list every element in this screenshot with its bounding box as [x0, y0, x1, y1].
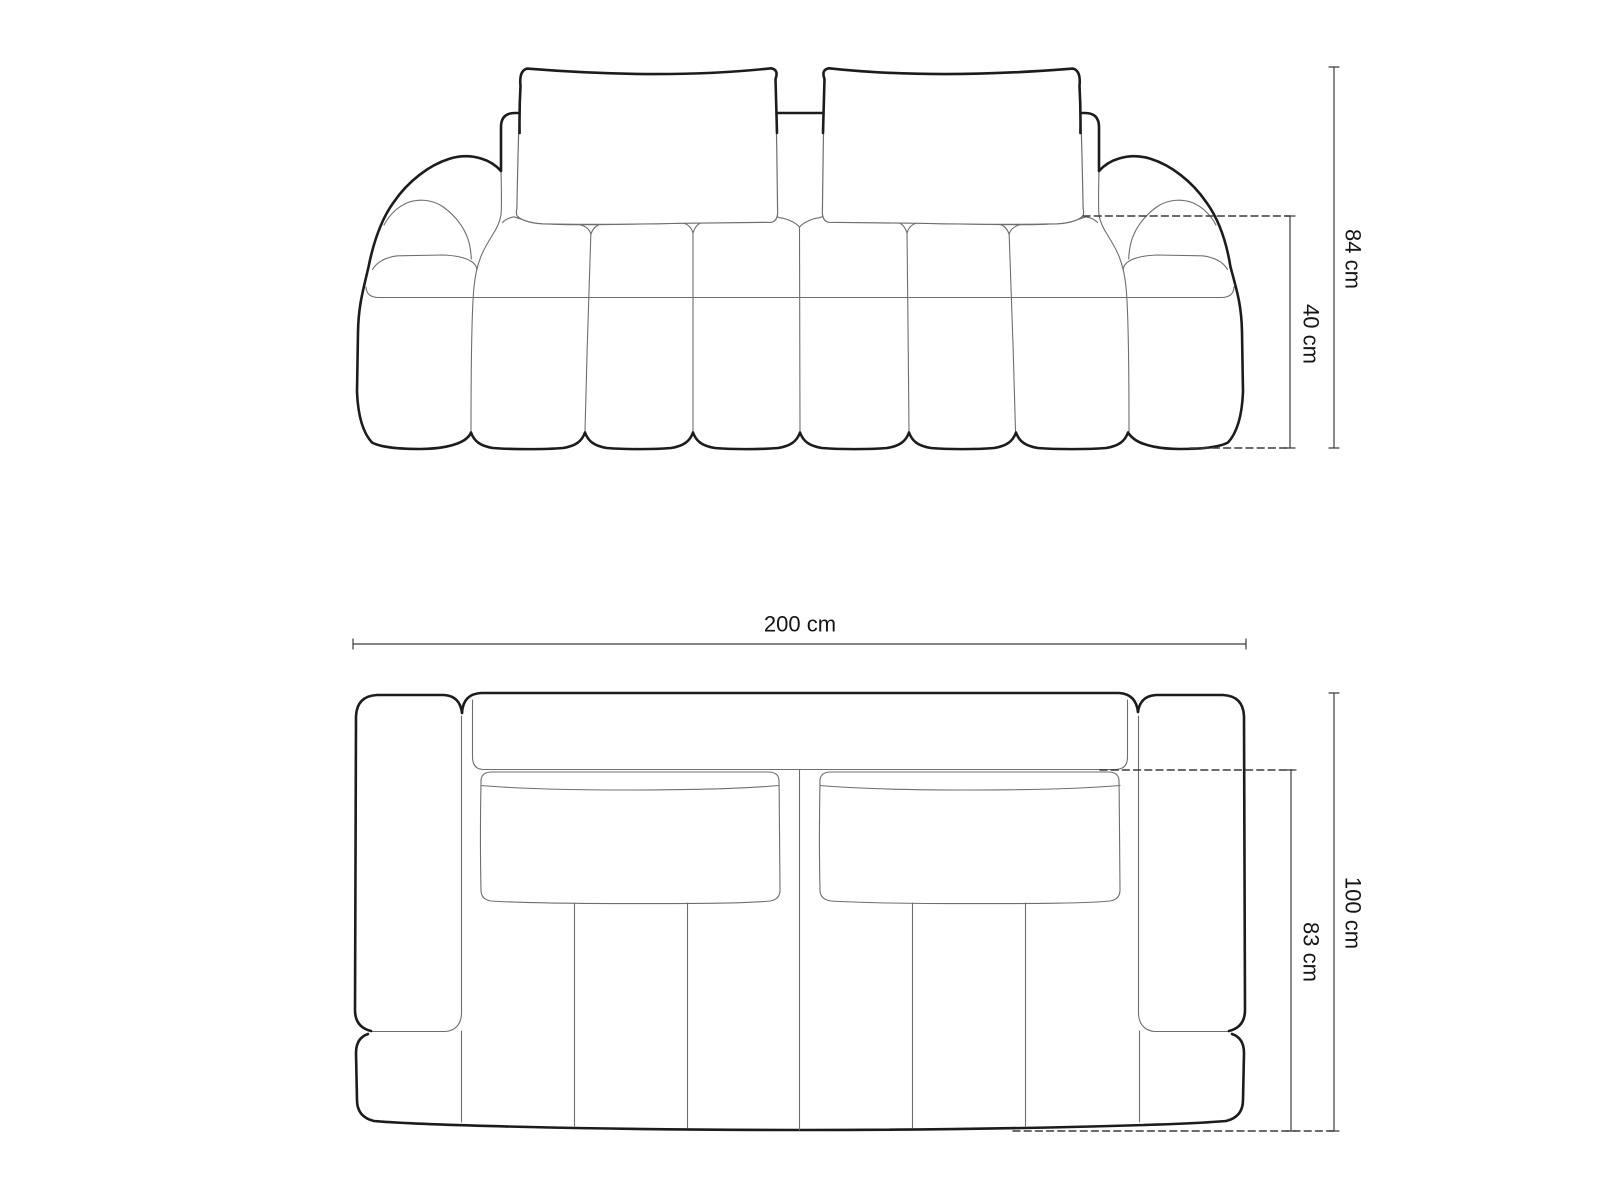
- svg-text:40 cm: 40 cm: [1299, 304, 1324, 364]
- svg-text:100 cm: 100 cm: [1341, 877, 1366, 949]
- svg-text:200 cm: 200 cm: [764, 612, 836, 637]
- svg-text:83 cm: 83 cm: [1299, 922, 1324, 982]
- svg-text:84 cm: 84 cm: [1341, 229, 1366, 289]
